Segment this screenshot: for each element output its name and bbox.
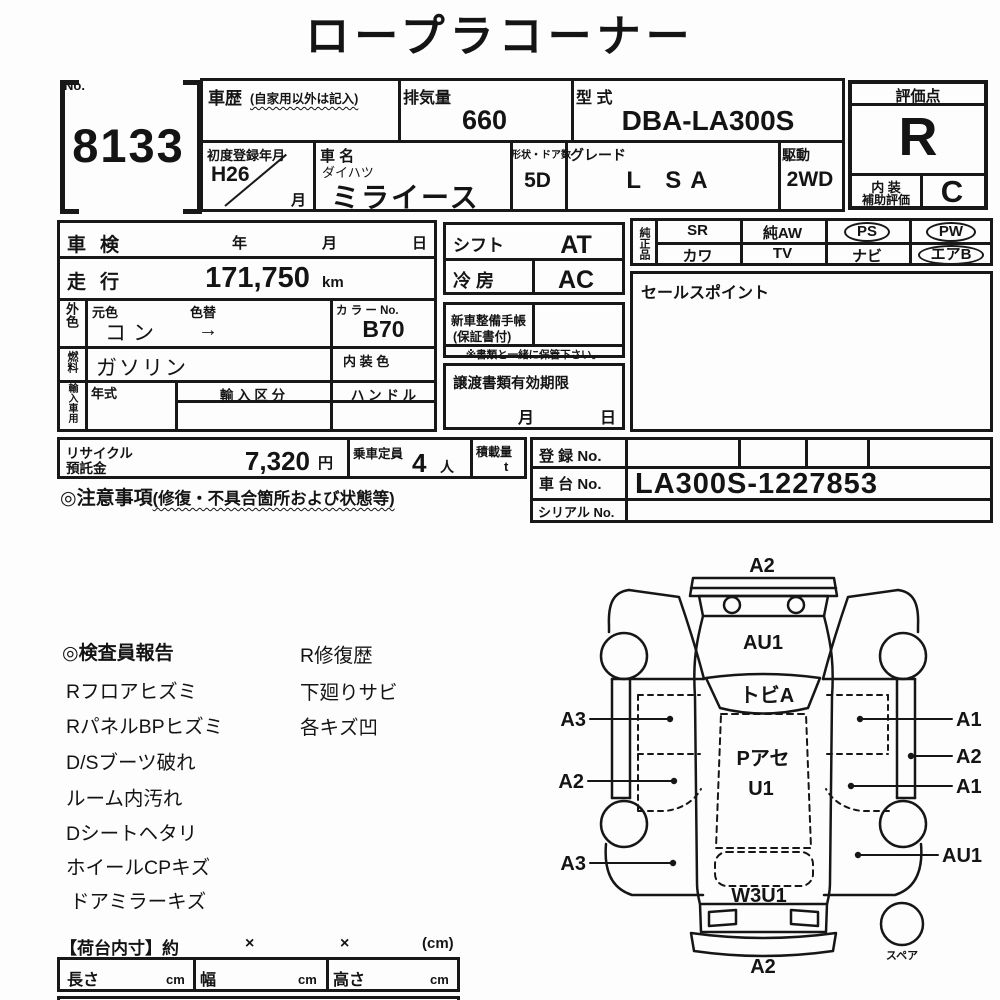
equipment-label: 純正品	[638, 222, 649, 264]
diagram-label-spare: スペア	[886, 949, 918, 962]
report-item: ルーム内汚れ	[66, 782, 182, 811]
transfer-box: 譲渡書類有効期限 月 日	[443, 363, 625, 430]
report-item: D/Sブーツ破れ	[66, 746, 196, 775]
report-item: R修復歴	[300, 639, 373, 668]
leader-dots	[667, 716, 914, 866]
diagram-label-rear-bottom: A2	[750, 956, 776, 978]
report-item: Rフロアヒズミ	[66, 675, 197, 704]
caution-heading: ◎注意事項	[60, 488, 153, 509]
left-fender	[609, 590, 629, 632]
import-class-label: 輸 入 区 分	[175, 384, 330, 404]
capacity-label: 乗車定員	[353, 443, 403, 462]
lot-number: 8133	[60, 118, 197, 173]
diagram-label-roof-1: Pアセ	[737, 748, 790, 770]
history-note: (自家用以外は記入)	[250, 88, 358, 107]
left-rear-wheel	[601, 801, 647, 847]
front-panel	[699, 596, 828, 616]
ac-value: AC	[532, 266, 620, 295]
diagram-label-hood: AU1	[743, 632, 783, 654]
right-fender	[898, 590, 918, 632]
diagram-label-front: A2	[749, 555, 775, 577]
diagram-label-right-2: A1	[956, 776, 982, 798]
model-code-value: DBA-LA300S	[571, 105, 845, 137]
equip-sr: SR	[655, 222, 740, 239]
transfer-label: 譲渡書類有効期限	[453, 372, 569, 393]
diagram-label-left-0: A3	[560, 709, 586, 731]
interior-score-value: C	[920, 174, 984, 210]
left-front-wheel	[601, 633, 647, 679]
report-item: 各キズ凹	[300, 711, 378, 740]
equip-navi: ナビ	[825, 245, 909, 266]
diagram-label-right-3: AU1	[942, 845, 982, 867]
ext-color-value: コン	[105, 317, 161, 347]
taillight-right	[791, 910, 818, 926]
equip-tv: TV	[740, 245, 825, 262]
report-item: ホイールCPキズ	[66, 851, 210, 880]
recycle-label-2: 預託金	[66, 457, 107, 477]
left-quarter	[606, 844, 703, 895]
shaken-label: 車検	[67, 230, 133, 257]
transfer-month: 月	[518, 404, 534, 428]
interior-color-label: 内 装 色	[343, 351, 389, 370]
color-no-value: B70	[330, 316, 437, 343]
right-front-wheel	[880, 633, 926, 679]
cargo-width-unit: cm	[298, 972, 317, 987]
fuel-label: 燃料	[66, 351, 77, 377]
registration-table: 登 録 No. 車 台 No. LA300S-1227853 シリアル No.	[530, 437, 993, 523]
report-item: ドアミラーキズ	[70, 885, 206, 914]
recycle-row: リサイクル 預託金 7,320 円 乗車定員 4 人 積載量 t	[57, 437, 527, 479]
auction-sheet: ロープラコーナー No. 8133 車歴 (自家用以外は記入) 排気量 660 …	[0, 0, 1000, 1000]
grade-label: グレード	[570, 145, 626, 165]
mileage-label: 走行	[67, 267, 133, 294]
ac-label: 冷 房	[453, 267, 494, 293]
interior-score-label-2: 補助評価	[852, 191, 920, 208]
score-box: 評価点 R 内 装 補助評価 C	[848, 80, 988, 210]
shaken-day: 日	[412, 232, 427, 253]
chassis-label: 車 台 No.	[539, 473, 602, 494]
page-title: ロープラコーナー	[0, 0, 1000, 64]
equip-kawa: カワ	[655, 245, 740, 266]
reg-no-label: 登 録 No.	[539, 445, 602, 466]
diagram-label-left-2: A3	[560, 853, 586, 875]
displacement-value: 660	[398, 105, 571, 136]
grade-value: L SA	[565, 167, 778, 195]
serial-label: シリアル No.	[538, 502, 614, 521]
car-name-value: ミライース	[331, 176, 480, 216]
recycle-value: 7,320	[160, 446, 310, 477]
equip-pw: PW	[909, 222, 993, 242]
body-doors-value: 5D	[510, 169, 565, 193]
first-reg-value: H26	[211, 163, 250, 187]
rear-window	[715, 852, 813, 886]
capacity-value: 4	[412, 448, 426, 479]
details-table: 車検 年 月 日 走行 171,750 km 外色 元色 色替 コン → カ ラ…	[57, 220, 437, 432]
service-book-label-2: (保証書付)	[453, 326, 511, 345]
diagram-label-right-1: A2	[956, 746, 982, 768]
capacity-unit: 人	[440, 457, 454, 477]
diagram-label-windshield: トビA	[740, 684, 794, 707]
inspector-report-heading: ◎検査員報告	[62, 638, 174, 665]
color-change-arrow: →	[198, 319, 218, 342]
cargo-length-label: 長さ	[67, 966, 99, 990]
service-book-box: 新車整備手帳 (保証書付) ※書類と一緒に保管下さい。	[443, 302, 625, 358]
equip-ps: PS	[825, 222, 909, 242]
fuel-value: ガソリン	[96, 352, 188, 382]
rear-bumper	[691, 933, 836, 956]
cargo-table: 長さ cm 幅 cm 高さ cm	[57, 957, 460, 992]
history-label: 車歴	[208, 84, 242, 109]
cargo-times-2: ×	[340, 935, 349, 953]
right-sill	[897, 679, 915, 798]
rear-panel	[700, 904, 827, 932]
headlight-right	[788, 597, 804, 613]
diagram-label-rear: W3U1	[731, 885, 787, 907]
transfer-day: 日	[600, 404, 616, 428]
drive-label: 駆動	[782, 145, 810, 165]
diagram-label-right-0: A1	[956, 709, 982, 731]
headlight-left	[724, 597, 740, 613]
recycle-unit: 円	[318, 452, 333, 473]
shift-ac-box: シフト AT 冷 房 AC	[443, 222, 625, 295]
cargo-heading: 【荷台内寸】約	[60, 934, 179, 959]
drive-value: 2WD	[778, 168, 842, 192]
cargo-unit: (cm)	[422, 935, 454, 952]
equip-aw: 純AW	[740, 222, 825, 243]
cargo-times-1: ×	[245, 935, 254, 953]
shift-value: AT	[534, 231, 618, 260]
diagram-label-roof-2: U1	[748, 778, 774, 800]
right-quarter	[824, 844, 921, 895]
first-reg-label: 初度登録年月	[207, 145, 285, 164]
load-label: 積載量	[476, 443, 512, 460]
cargo-height-unit: cm	[430, 972, 449, 987]
body-doors-label: 形状・ドア数	[511, 146, 571, 161]
score-value: R	[852, 106, 984, 168]
cargo-height-label: 高さ	[333, 966, 365, 990]
import-year-label: 年式	[91, 383, 117, 402]
equip-airb: エアB	[909, 245, 993, 265]
load-unit: t	[504, 459, 508, 474]
shaken-year: 年	[232, 232, 247, 253]
import-label: 輸入車用	[66, 383, 76, 429]
car-damage-diagram: A2 AU1 トビA Pアセ U1 W3U1 A2 A3 A2 A3 A1 A2…	[540, 552, 1000, 997]
spare-tire	[881, 903, 923, 945]
sales-point-label: セールスポイント	[641, 279, 769, 303]
mileage-value: 171,750	[175, 262, 340, 295]
mileage-unit: km	[322, 274, 344, 291]
equipment-grid: 純正品 SR 純AW PS PW カワ TV ナビ エアB	[630, 218, 993, 266]
diagram-label-left-1: A2	[558, 771, 584, 793]
taillight-left	[709, 910, 736, 926]
service-book-note: ※書類と一緒に保管下さい。	[446, 347, 622, 362]
report-item: RパネルBPヒズミ	[66, 710, 223, 739]
first-reg-month: 月	[291, 189, 306, 210]
header-table: 車歴 (自家用以外は記入) 排気量 660 型 式 DBA-LA300S 初度登…	[200, 78, 845, 212]
chassis-value: LA300S-1227853	[635, 468, 878, 501]
ext-color-label: 外色	[65, 302, 78, 344]
shift-label: シフト	[453, 231, 504, 256]
handle-label: ハ ン ド ル	[333, 384, 434, 404]
shaken-month: 月	[322, 232, 337, 253]
sales-point-box: セールスポイント	[630, 271, 993, 432]
report-item: Dシートヘタリ	[66, 817, 197, 846]
caution-line: ◎注意事項(修復・不具合箇所および状態等)	[60, 483, 395, 510]
cargo-length-unit: cm	[166, 972, 185, 987]
right-rear-wheel	[880, 801, 926, 847]
cargo-width-label: 幅	[200, 966, 216, 990]
cargo-notes-box-partial	[57, 996, 460, 1000]
report-item: 下廻りサビ	[300, 676, 398, 705]
caution-note: (修復・不具合箇所および状態等)	[153, 490, 395, 508]
